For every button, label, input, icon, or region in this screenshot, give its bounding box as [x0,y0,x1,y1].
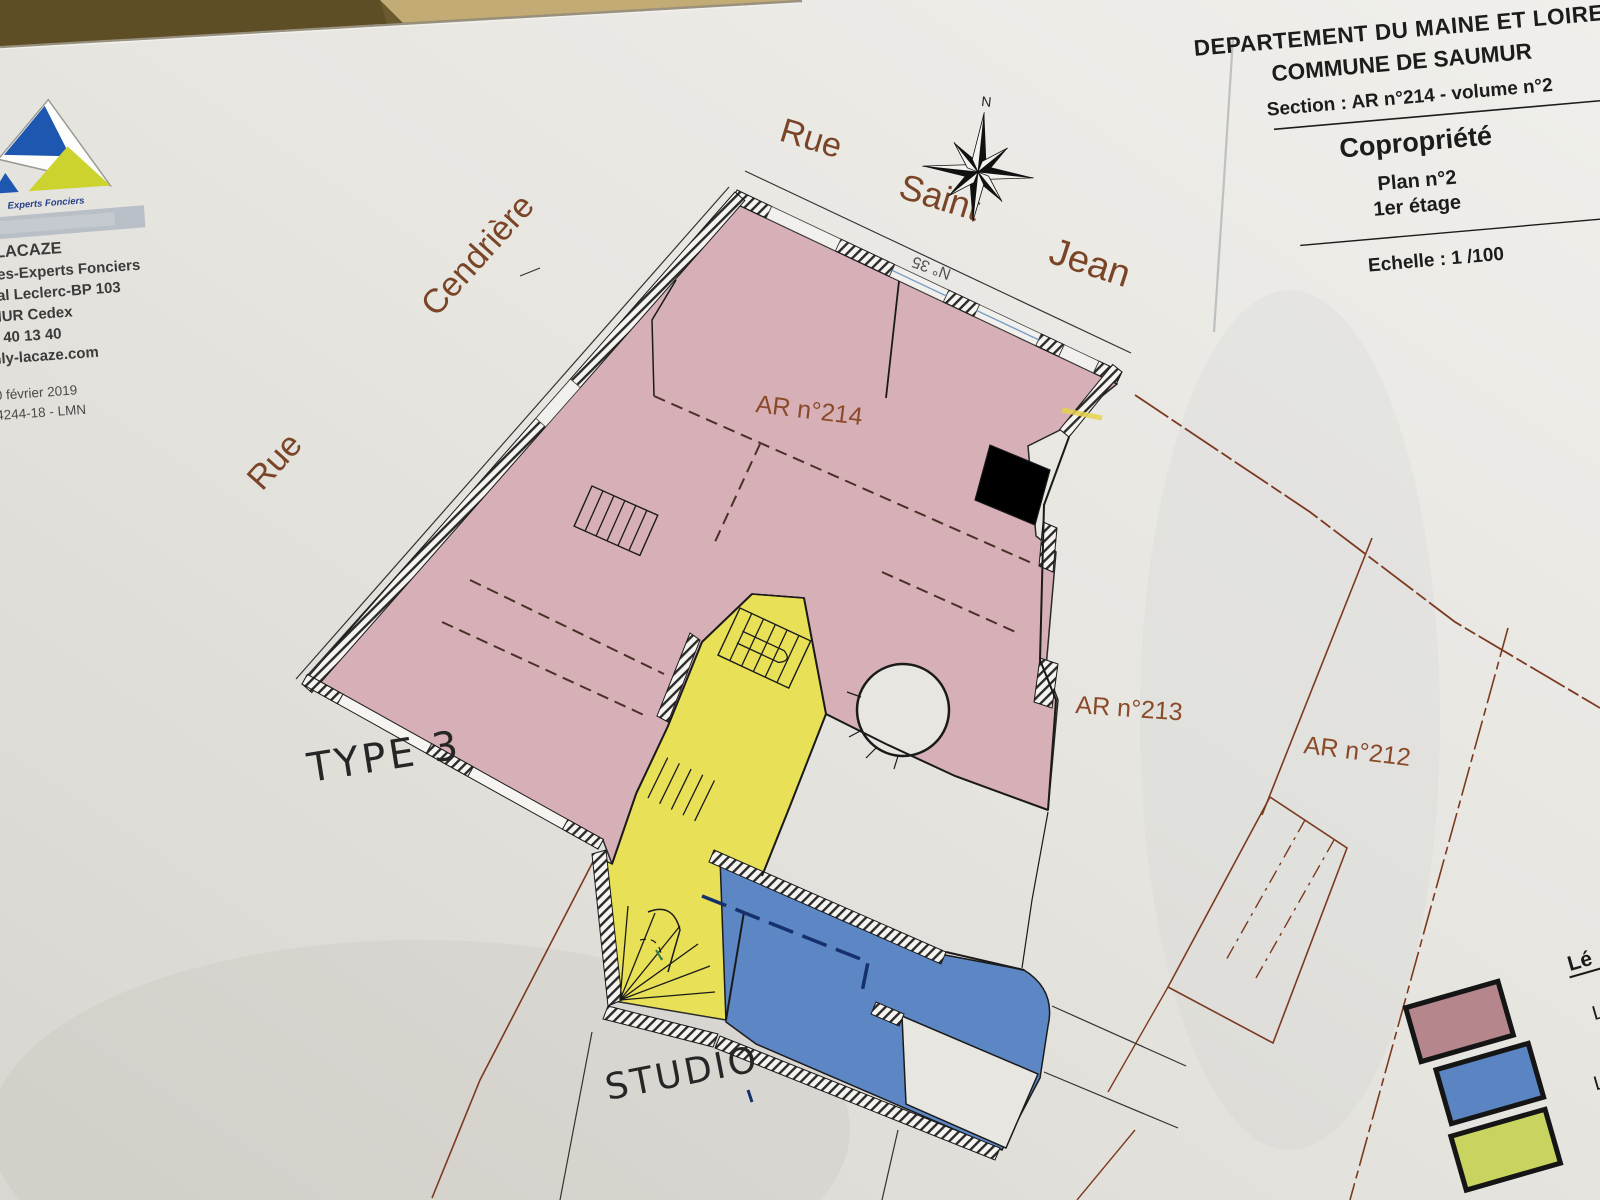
curved-wall-bay [857,664,949,756]
compass-north-label: N [981,93,993,110]
photographed-floor-plan: Rue Saint Jean Rue Cendrière N° 35 AR n°… [0,0,1600,1200]
floor-plan-photo: Rue Saint Jean Rue Cendrière N° 35 AR n°… [0,0,1600,1200]
